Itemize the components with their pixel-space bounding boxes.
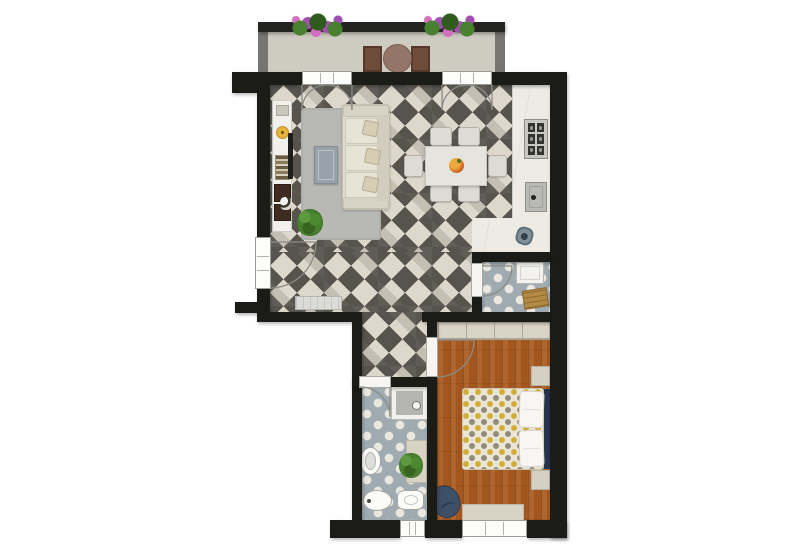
dining-chair (430, 127, 452, 146)
wall-segment (527, 520, 567, 538)
knick-knack (280, 197, 292, 210)
wall-segment (330, 520, 400, 538)
hallway-floor (362, 312, 427, 378)
burner-icon (528, 123, 535, 132)
potted-plant-icon (297, 209, 323, 236)
wall-stub (232, 85, 257, 93)
bidet (397, 490, 424, 510)
bedroom-bench (462, 504, 524, 521)
balcony-french-door (442, 71, 492, 85)
sofa (342, 104, 390, 210)
laundry-door (471, 263, 483, 297)
dining-chair (430, 185, 452, 202)
bistro-table (383, 44, 412, 73)
dining-chair (404, 155, 423, 177)
wall-segment (427, 376, 437, 520)
kitchen-nook-floor (472, 218, 550, 252)
burner-icon (537, 134, 544, 143)
wall-segment (352, 72, 442, 85)
wall-segment (257, 85, 270, 237)
wall-segment (232, 72, 302, 85)
french-window (255, 237, 271, 289)
cooktop (524, 119, 548, 159)
burner-icon (528, 146, 535, 155)
bed-pillow (518, 391, 544, 429)
wall-segment (425, 520, 462, 538)
flower-box-icon (420, 8, 478, 42)
kitchen-sink (525, 182, 547, 212)
bedroom-window (462, 520, 527, 537)
bedroom-door (426, 337, 438, 377)
laundry-basket (522, 287, 550, 310)
coffee-table (314, 146, 338, 184)
wall-segment (352, 322, 362, 520)
burner-icon (537, 146, 544, 155)
burner-icon (528, 134, 535, 143)
wall-segment (257, 312, 362, 322)
wall-segment (422, 312, 550, 322)
bathroom-window (400, 520, 425, 537)
radiator (295, 296, 342, 310)
balcony-french-door (302, 71, 352, 85)
throw-pillow (362, 176, 380, 194)
throw-pillow (364, 148, 382, 166)
dining-chair (488, 155, 507, 177)
nightstand (531, 470, 550, 490)
fruit-bowl (449, 158, 464, 173)
throw-pillow (362, 120, 380, 138)
nightstand (531, 366, 550, 386)
bistro-chair (411, 46, 430, 72)
wall-segment (472, 296, 482, 312)
wall-segment (390, 377, 427, 387)
bistro-chair (363, 46, 382, 72)
burner-icon (537, 123, 544, 132)
wall-segment (472, 252, 550, 262)
wall-segment (550, 72, 567, 538)
dining-chair (458, 185, 480, 202)
wardrobe (437, 322, 550, 340)
bathroom-door (359, 376, 391, 388)
console-decor (276, 105, 289, 116)
bed-pillow (518, 430, 544, 468)
tv (288, 133, 293, 179)
shower (391, 386, 428, 420)
flower-box-icon (288, 8, 346, 42)
bathroom-sink (360, 447, 381, 475)
washing-machine (516, 262, 544, 284)
floor-plan-canvas (0, 0, 800, 550)
bath-plant-icon (399, 453, 423, 478)
dining-chair (458, 127, 480, 146)
wall-segment (427, 322, 437, 338)
